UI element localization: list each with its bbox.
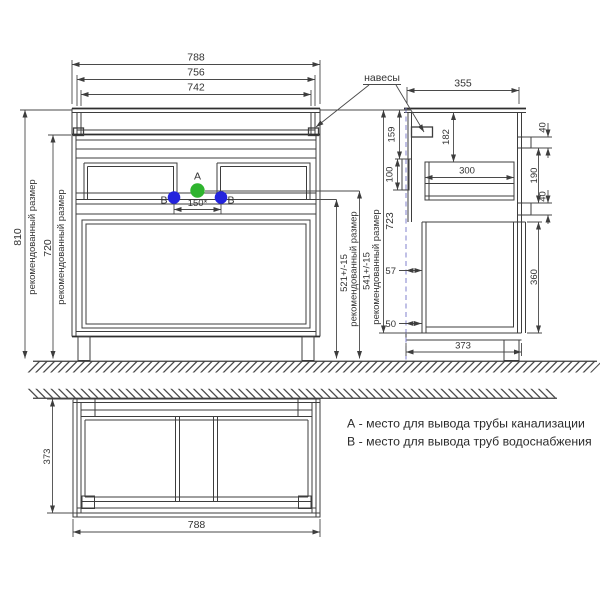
dim-body-height-723: 723 [384, 212, 396, 230]
front-view [72, 109, 320, 361]
label-recommended-541: рекомендованный размер [371, 209, 382, 324]
wall-line-plan [32, 393, 557, 398]
hangers-label: навесы [364, 72, 400, 84]
point-b-water-dot-left [168, 191, 181, 204]
floor-line [33, 361, 597, 367]
label-recommended-720: рекомендованный размер [56, 189, 67, 304]
dim-side-drop-159: 159 [387, 127, 398, 143]
legend-note-b: B - место для вывода труб водоснабжения [347, 435, 592, 449]
dim-side-fascia-40-top: 40 [538, 122, 549, 133]
dim-front-height-810: 810 [12, 228, 24, 246]
dim-plan-depth-373: 373 [42, 449, 53, 465]
front-drawer-inner [86, 224, 306, 324]
front-leg-right [302, 337, 314, 361]
point-b-water-dot-right [215, 191, 228, 204]
dim-side-wall-gap-50: 50 [385, 319, 396, 330]
front-view-heavy-lines [72, 109, 320, 337]
point-a-label: A [194, 171, 201, 183]
dim-b-spacing-150: 150* [188, 198, 208, 209]
hangers-leader-arrow-right [418, 124, 426, 133]
point-a-sewage-dot [190, 183, 204, 197]
vanity-dimension-drawing: A B B 788 756 742 810 рекомендованный ра… [0, 0, 600, 600]
plan-view [73, 399, 320, 517]
side-leg-front [504, 340, 519, 361]
technical-drawing-canvas: A B B 788 756 742 810 рекомендованный ра… [0, 0, 600, 600]
front-drawer-outer [82, 220, 310, 328]
dim-side-depth-355: 355 [454, 78, 472, 90]
dim-side-top-182: 182 [441, 129, 452, 145]
side-view-lines [404, 113, 526, 341]
dim-side-gap-190: 190 [529, 168, 540, 184]
point-b-label-right: B [227, 195, 234, 207]
legend-note-a: А - место для вывода трубы канализации [347, 417, 585, 431]
plan-leg-left [82, 496, 95, 509]
dim-front-height-720: 720 [42, 239, 54, 257]
dim-plan-width-788: 788 [188, 519, 206, 531]
dim-side-fascia-40-bottom: 40 [538, 191, 549, 202]
dim-side-depth-373: 373 [455, 341, 471, 352]
plan-view-lines [73, 399, 320, 517]
label-recommended-810: рекомендованный размер [27, 179, 38, 294]
label-recommended-521: рекомендованный размер [349, 211, 360, 326]
dim-side-door-360: 360 [529, 269, 540, 285]
dim-side-wall-gap-57: 57 [385, 266, 396, 277]
legend: А - место для вывода трубы канализации B… [347, 417, 592, 449]
dim-side-bracket-100: 100 [385, 167, 396, 183]
dim-front-width-742: 742 [187, 82, 205, 94]
front-leg-left [78, 337, 90, 361]
dimension-lines [20, 60, 552, 537]
dim-front-width-756: 756 [187, 67, 205, 79]
dimension-labels: 788 756 742 810 рекомендованный размер 7… [12, 52, 549, 532]
dimension-arrows [23, 62, 551, 535]
point-b-label-left: B [160, 195, 167, 207]
dim-front-width-788: 788 [187, 52, 205, 64]
plan-leg-right [299, 496, 312, 509]
front-view-lines [72, 109, 320, 337]
dim-side-drawer-300: 300 [459, 166, 475, 177]
